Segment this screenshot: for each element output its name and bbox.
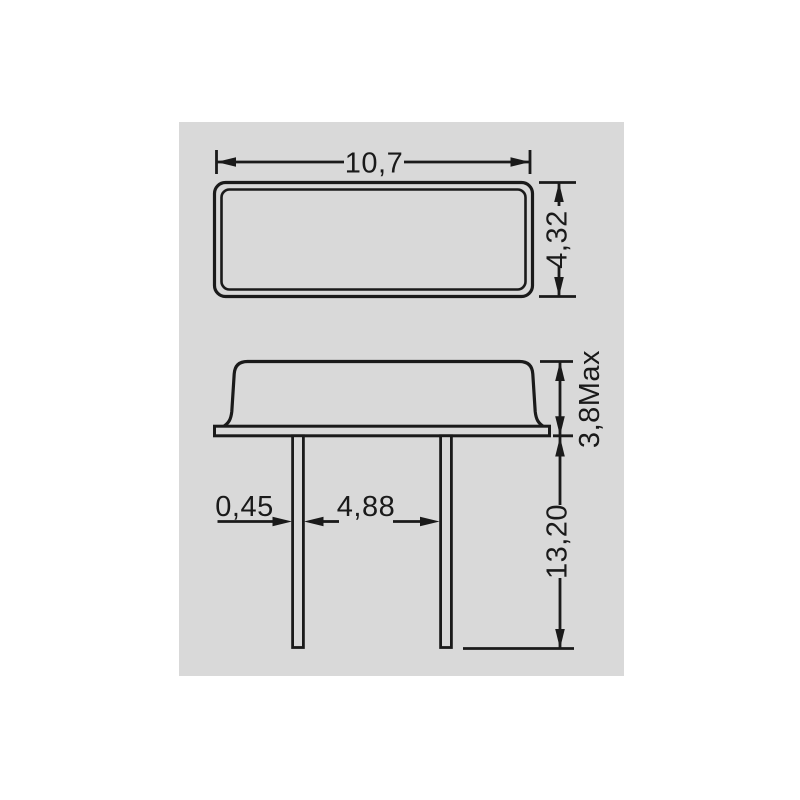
dim-label-top-width: 10,7	[345, 148, 403, 180]
drawing-panel	[179, 122, 624, 676]
dimension-drawing: 10,7 4,32 3,8Max	[0, 0, 800, 800]
dim-label-lead-length: 13,20	[542, 504, 574, 579]
lead-right	[441, 436, 452, 648]
dim-label-body-height: 3,8Max	[574, 350, 606, 448]
dim-label-top-height: 4,32	[542, 210, 574, 268]
lead-left	[293, 436, 304, 648]
page: 10,7 4,32 3,8Max	[0, 0, 800, 800]
dim-label-lead-spacing: 4,88	[337, 491, 395, 523]
dim-label-lead-width: 0,45	[215, 491, 273, 523]
side-view-base-plate	[215, 426, 550, 436]
